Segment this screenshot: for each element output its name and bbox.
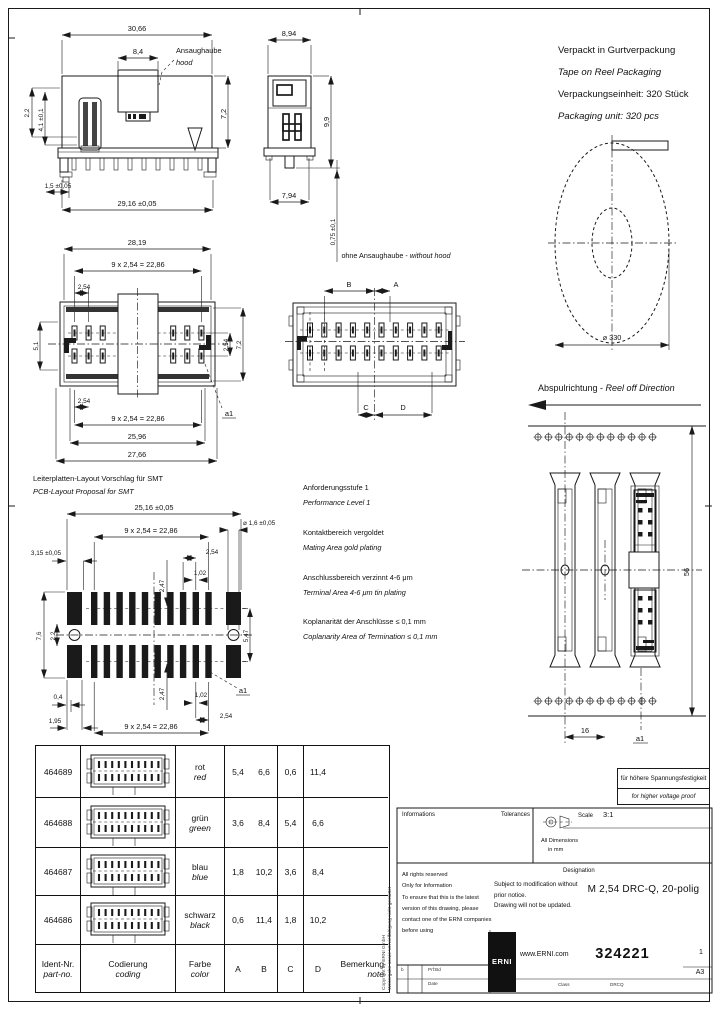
packaging-line1-en: Tape on Reel Packaging <box>558 62 688 84</box>
value-c-cell: 3,6 <box>278 848 304 896</box>
packaging-info: Verpackt in Gurtverpackung Tape on Reel … <box>558 40 688 128</box>
table-row-part: 464687 <box>36 848 81 896</box>
dim-pitch-1: 2,54 <box>78 284 91 291</box>
header-b: B <box>251 964 277 974</box>
tape-strip-drawing: 56 16 a1 <box>522 412 706 745</box>
color-en: blue <box>192 872 208 882</box>
value-a: 0,6 <box>225 915 251 925</box>
value-ab-cell: 5,46,6 <box>225 746 278 798</box>
part-number: 464686 <box>44 915 72 925</box>
format-label: A3 <box>692 969 708 976</box>
dim-top-left: 5,1 <box>33 341 40 350</box>
dim-pitch-4: 2,54 <box>220 713 233 720</box>
value-c-cell: 5,4 <box>278 798 304 848</box>
dim-smt-h2: 2,2 <box>50 631 57 640</box>
note-de: Anforderungsstufe 1 <box>303 481 370 496</box>
smt-heading-de: Leiterplatten-Layout Vorschlag für SMT <box>33 472 163 485</box>
value-c-cell: 0,6 <box>278 746 304 798</box>
coding-drawing <box>81 896 176 945</box>
value-d: 11,4 <box>304 767 332 777</box>
dim-top-r2: 7,2 <box>236 340 243 349</box>
color-de: grün <box>191 813 208 823</box>
value-a: 3,6 <box>225 818 251 828</box>
header-color-de: Farbe <box>189 959 211 969</box>
color-en: red <box>194 772 206 782</box>
reel-off-arrow <box>528 400 701 410</box>
side-view-drawing: 30,66 8,4 Ansaughaube hood 7,2 2,2 4,1 ±… <box>24 24 228 210</box>
value-b: 10,2 <box>251 867 277 877</box>
modification-line: Subject to modification without <box>494 880 578 891</box>
value-d-note-cell: 11,4 <box>304 746 388 798</box>
dim-side-height: 7,2 <box>219 109 228 119</box>
end-view-drawing: 8,94 9,9 7,94 0,75 ±0,1 <box>264 29 340 262</box>
sheet-number: 1 <box>694 949 708 956</box>
value-ab-cell: 0,611,4 <box>225 896 278 945</box>
note-de: Kontaktbereich vergoldet <box>303 526 384 541</box>
dim-tape-pitch: 16 <box>581 726 589 735</box>
without-hood-en: without hood <box>410 251 451 260</box>
header-ab: AB <box>225 945 278 992</box>
dim-smt-h3: 5,47 <box>243 629 250 642</box>
color-de: rot <box>195 762 205 772</box>
value-d: 8,4 <box>304 867 332 877</box>
part-number: 464689 <box>44 767 72 777</box>
a1-label-2: a1 <box>239 686 247 695</box>
dim-smt-v2: 2,47 <box>159 687 166 700</box>
header-c-label: C <box>287 964 293 974</box>
dim-smt-left: 3,15 ±0,05 <box>31 550 62 557</box>
field-class: Class <box>558 982 570 987</box>
a1-label-1: a1 <box>225 409 233 418</box>
dim-smt-overall: 25,16 ±0,05 <box>135 503 174 512</box>
legal-text: All rights reserved Only for Information… <box>402 870 491 938</box>
dim-D: D <box>400 403 405 412</box>
copyright-line: Weitergabe sowie Vervielfältigung nicht … <box>388 887 394 990</box>
value-d: 10,2 <box>304 915 332 925</box>
dim-pitch-row-2: 9 x 2,54 = 22,86 <box>111 414 164 423</box>
color-cell: rotred <box>176 746 225 798</box>
field-b: b <box>401 967 404 972</box>
modification-line: prior notice. <box>494 891 578 902</box>
scale-label: Scale <box>578 813 593 819</box>
dim-pitch-row-4: 9 x 2,54 = 22,86 <box>124 722 177 731</box>
note-en: Coplanarity Area of Termination ≤ 0,1 mm <box>303 630 437 645</box>
note-en: Mating Area gold plating <box>303 541 384 556</box>
header-ident: Ident-Nr.part-no. <box>36 945 81 992</box>
hood-label-en: hood <box>176 58 193 67</box>
header-note-de: Bemerkung <box>332 959 384 969</box>
value-a: 1,8 <box>225 867 251 877</box>
legal-line: version of this drawing, please <box>402 904 491 915</box>
legal-line: before using <box>402 926 491 937</box>
note-performance: Anforderungsstufe 1 Performance Level 1 <box>303 481 370 510</box>
without-hood-label: ohne Ansaughaube - without hood <box>323 251 469 260</box>
header-a: A <box>225 964 251 974</box>
dim-smt-b2: 1,95 <box>49 718 62 725</box>
dim-top-overall: 28,19 <box>128 238 147 247</box>
header-ident-en: part-no. <box>43 969 72 979</box>
dim-side-bottom: 29,16 ±0,05 <box>118 199 157 208</box>
dim-A: A <box>394 280 399 289</box>
value-d: 6,6 <box>304 818 332 828</box>
header-color: Farbecolor <box>176 945 225 992</box>
header-d-note: DBemerkungnote <box>304 945 388 992</box>
dim-side-h2: 4,1 ±0,1 <box>38 108 45 131</box>
header-ident-de: Ident-Nr. <box>42 959 75 969</box>
modification-text: Subject to modification without prior no… <box>494 880 578 912</box>
value-c-cell: 1,8 <box>278 896 304 945</box>
dim-end-width: 8,94 <box>282 29 296 38</box>
reel-drawing: ⌀ 330 <box>548 135 678 352</box>
value-d-note-cell: 6,6 <box>304 798 388 848</box>
dimensions-note-1: All Dimensions <box>541 838 578 844</box>
value-ab-cell: 3,68,4 <box>225 798 278 848</box>
voltage-proof-box: für höhere Spannungsfestigkeit for highe… <box>617 768 710 805</box>
field-class-value: DRCQ <box>610 982 624 987</box>
dim-side-overall: 30,66 <box>128 24 147 33</box>
dim-top-b2: 27,66 <box>128 450 147 459</box>
dim-C: C <box>363 403 369 412</box>
field-name: Prf:Bd <box>428 967 441 972</box>
color-en: black <box>190 920 210 930</box>
header-coding: Codierungcoding <box>81 945 176 992</box>
without-hood-de: ohne Ansaughaube - <box>341 251 409 260</box>
dim-pin-offset: 1,5 ±0,05 <box>45 183 72 190</box>
coding-drawing <box>81 848 176 896</box>
dim-smt-b1: 0,4 <box>54 694 63 701</box>
header-coding-en: coding <box>115 969 140 979</box>
dim-smt-hole: ⌀ 1,6 ±0,05 <box>243 520 276 527</box>
dim-pitch-row-1: 9 x 2,54 = 22,86 <box>111 260 164 269</box>
legal-line: contact one of the ERNI companies <box>402 915 491 926</box>
voltage-proof-de: für höhere Spannungsfestigkeit <box>618 769 709 789</box>
color-en: green <box>189 823 211 833</box>
variant-table: 464689 rotred 5,46,6 0,6 11,4 464688 grü… <box>35 745 390 993</box>
designation-label: Designation <box>563 868 595 874</box>
header-note-en: note <box>332 969 384 979</box>
dim-end-height: 9,9 <box>322 117 331 127</box>
dim-end-standoff: 0,75 ±0,1 <box>330 218 337 245</box>
dim-top-r1: 2,54 <box>223 338 230 351</box>
note-tin-plating: Anschlussbereich verzinnt 4-6 μm Termina… <box>303 571 413 600</box>
value-c: 3,6 <box>285 867 297 877</box>
packaging-line2-de: Verpackungseinheit: 320 Stück <box>558 84 688 106</box>
value-d-note-cell: 10,2 <box>304 896 388 945</box>
erni-logo: ERNI <box>488 932 516 992</box>
informations-label: Informations <box>402 812 435 818</box>
legal-line: Only for Information <box>402 881 491 892</box>
dim-pitch-3: 2,54 <box>206 549 219 556</box>
scale-value: 3:1 <box>603 810 613 819</box>
smt-heading: Leiterplatten-Layout Vorschlag für SMT P… <box>33 472 163 498</box>
dim-pitch-row-3: 9 x 2,54 = 22,86 <box>124 526 177 535</box>
dimensions-note-2: in mm <box>548 847 563 853</box>
dim-smt-v1: 2,47 <box>159 579 166 592</box>
part-number: 464688 <box>44 818 72 828</box>
value-d-note-cell: 8,4 <box>304 848 388 896</box>
packaging-line2-en: Packaging unit: 320 pcs <box>558 106 688 128</box>
value-c: 5,4 <box>285 818 297 828</box>
designation-value: M 2,54 DRC-Q, 20-polig <box>575 884 712 895</box>
value-a: 5,4 <box>225 767 251 777</box>
header-color-en: color <box>191 969 209 979</box>
modification-line: Drawing will not be updated. <box>494 901 578 912</box>
note-en: Performance Level 1 <box>303 496 370 511</box>
reel-off-de: Abspulrichtung - <box>538 383 606 393</box>
legal-line: To ensure that this is the latest <box>402 893 491 904</box>
table-row-part: 464688 <box>36 798 81 848</box>
voltage-proof-en: for higher voltage proof <box>618 789 709 805</box>
datasheet-page: { "packaging": { "de1": "Verpackt in Gur… <box>0 0 720 1012</box>
reel-off-en: Reel off Direction <box>606 383 675 393</box>
part-number-value: 324221 <box>585 946 660 962</box>
value-b: 6,6 <box>251 767 277 777</box>
note-de: Koplanarität der Anschlüsse ≤ 0,1 mm <box>303 615 437 630</box>
part-number: 464687 <box>44 867 72 877</box>
website-link[interactable]: www.ERNI.com <box>520 951 569 958</box>
dim-tape-width: 56 <box>682 568 691 576</box>
table-row-part: 464689 <box>36 746 81 798</box>
smt-heading-en: PCB-Layout Proposal for SMT <box>33 485 163 498</box>
projection-symbol-icon <box>543 816 572 828</box>
dim-end-bottom: 7,94 <box>282 191 296 200</box>
packaging-line1-de: Verpackt in Gurtverpackung <box>558 40 688 62</box>
color-de: blau <box>192 862 208 872</box>
dim-reel-diameter: ⌀ 330 <box>603 333 622 342</box>
color-cell: schwarzblack <box>176 896 225 945</box>
header-coding-de: Codierung <box>108 959 147 969</box>
dim-smt-padw-1: 1,02 <box>194 570 207 577</box>
dim-top-b1: 25,96 <box>128 432 147 441</box>
copyright-text: Copyright by ERNI GmbH Weitergabe sowie … <box>382 887 394 990</box>
value-c: 1,8 <box>285 915 297 925</box>
value-c: 0,6 <box>285 767 297 777</box>
header-d-label: D <box>304 964 332 974</box>
value-b: 8,4 <box>251 818 277 828</box>
note-en: Terminal Area 4-6 μm tin plating <box>303 586 413 601</box>
note-coplanarity: Koplanarität der Anschlüsse ≤ 0,1 mm Cop… <box>303 615 437 644</box>
table-row-part: 464686 <box>36 896 81 945</box>
dim-hood-width: 8,4 <box>133 47 143 56</box>
dim-pitch-2: 2,54 <box>78 398 91 405</box>
color-cell: blaublue <box>176 848 225 896</box>
value-ab-cell: 1,810,2 <box>225 848 278 896</box>
dim-smt-padw-2: 1,02 <box>195 692 208 699</box>
field-date: Date <box>428 981 438 986</box>
dim-side-h1: 2,2 <box>24 108 31 117</box>
color-de: schwarz <box>184 910 215 920</box>
header-c: C <box>278 945 304 992</box>
dim-smt-h1: 7,6 <box>36 631 43 640</box>
smt-layout-drawing: 25,16 ±0,05 9 x 2,54 = 22,86 ⌀ 1,6 ±0,05… <box>31 503 276 733</box>
dim-B: B <box>347 280 352 289</box>
header-note: Bemerkungnote <box>332 959 388 979</box>
coding-drawing <box>81 746 176 798</box>
reel-off-direction-label: Abspulrichtung - Reel off Direction <box>538 383 675 393</box>
a1-label-3: a1 <box>636 734 644 743</box>
value-b: 11,4 <box>251 915 277 925</box>
top-view-nohood-drawing: B A C D <box>285 280 465 420</box>
legal-line: All rights reserved <box>402 870 491 881</box>
note-de: Anschlussbereich verzinnt 4-6 μm <box>303 571 413 586</box>
coding-drawing <box>81 798 176 848</box>
color-cell: grüngreen <box>176 798 225 848</box>
top-view-hood-drawing: 28,19 9 x 2,54 = 22,86 2,54 2,54 9 x 2,5… <box>33 238 243 461</box>
note-gold-plating: Kontaktbereich vergoldet Mating Area gol… <box>303 526 384 555</box>
hood-label-de: Ansaughaube <box>176 46 222 55</box>
tolerances-label: Tolerances <box>470 812 530 818</box>
